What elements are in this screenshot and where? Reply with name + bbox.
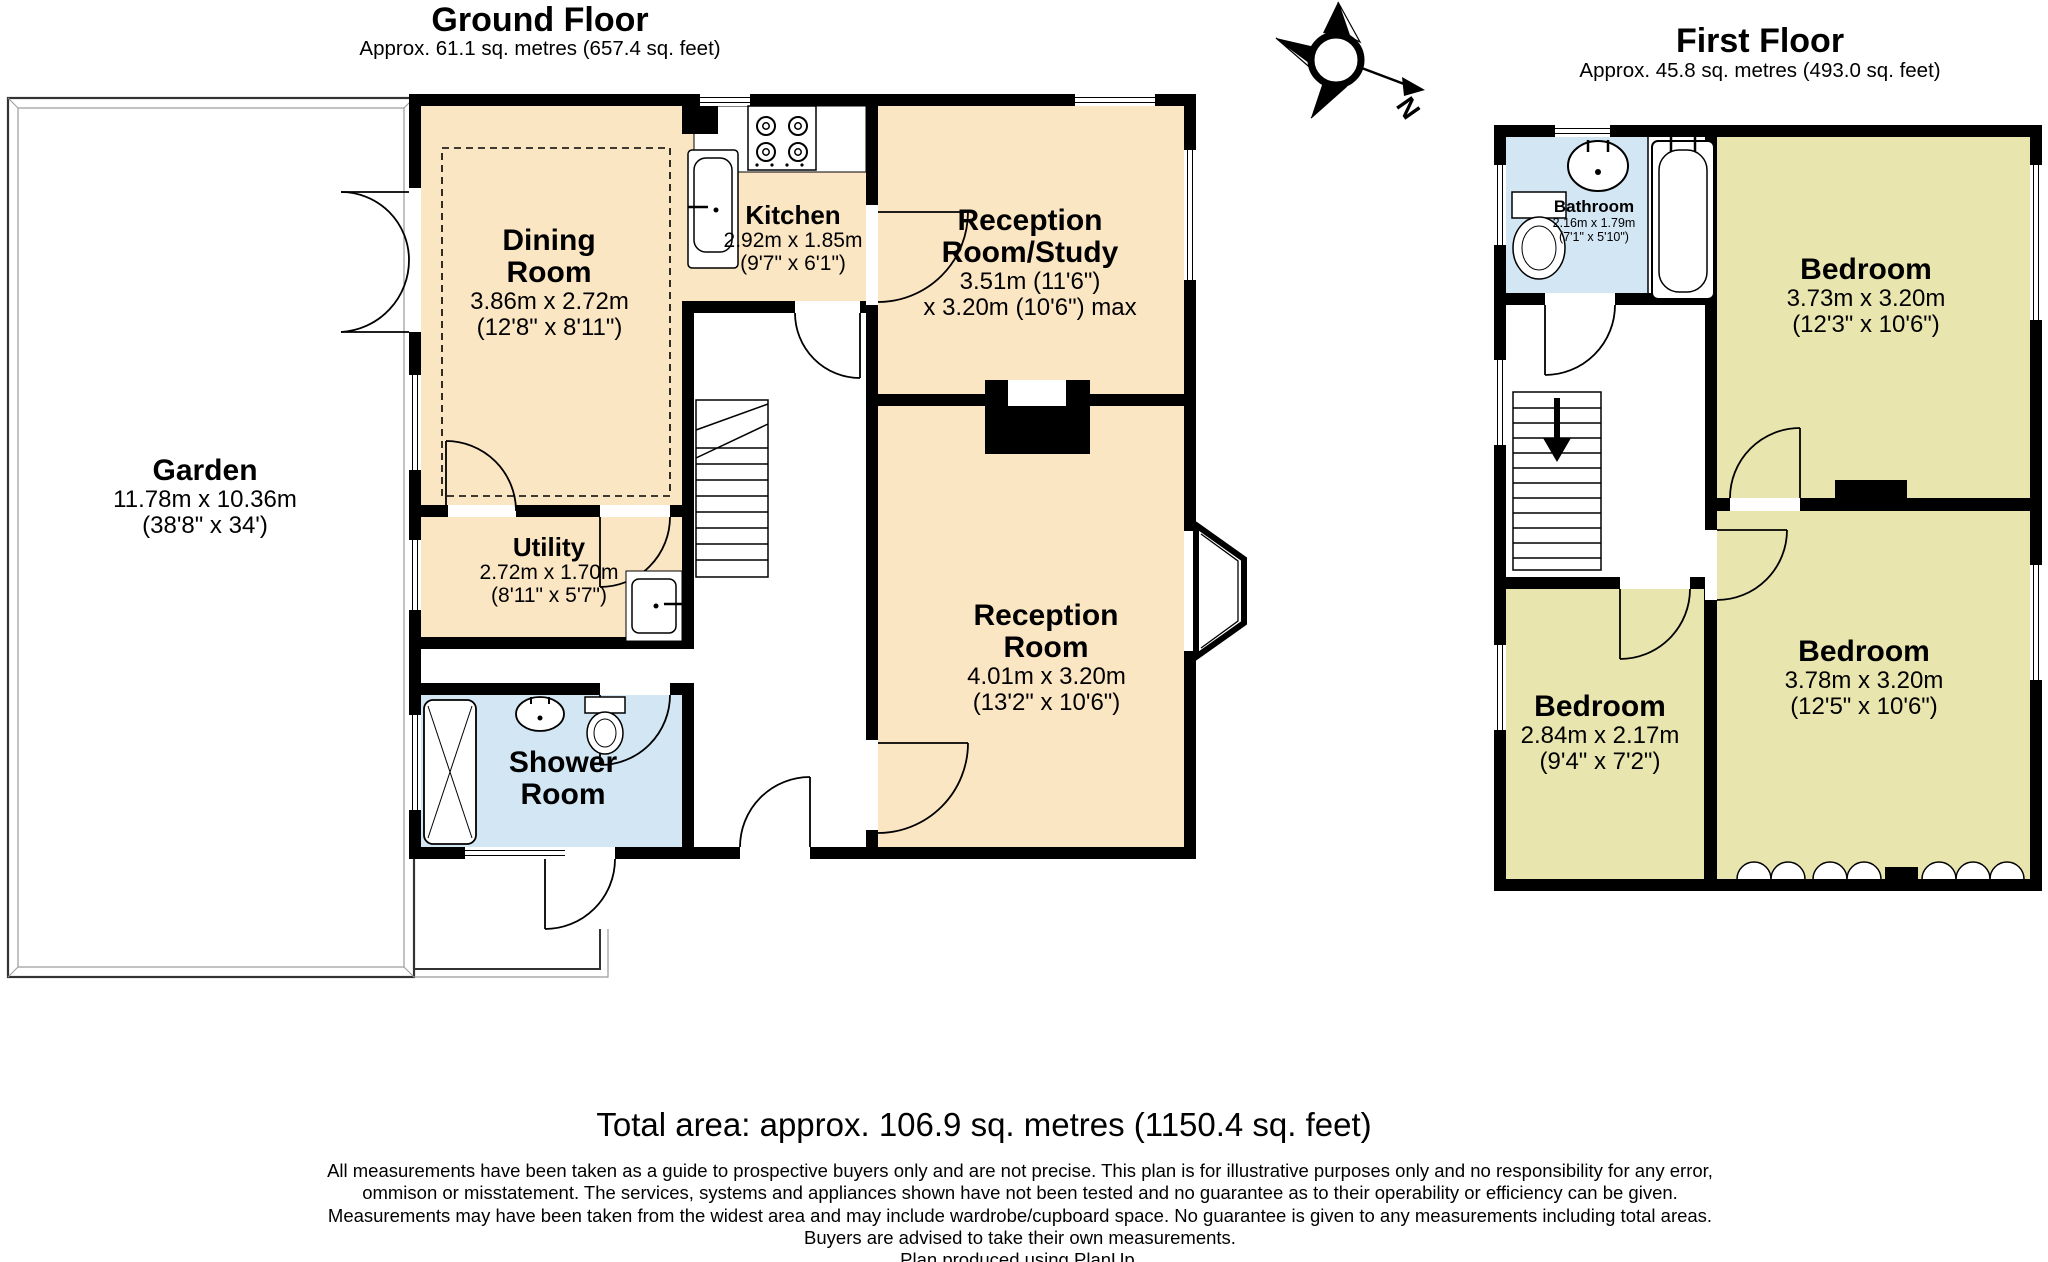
shower-tray-icon xyxy=(424,700,476,844)
room-dims-metric: 11.78m x 10.36m xyxy=(45,487,365,513)
room-name: Reception Room/Study xyxy=(913,205,1148,269)
room-dims-metric: 3.51m (11'6") xyxy=(913,269,1148,295)
room-dims-metric: 2.92m x 1.85m xyxy=(643,229,943,252)
room-dims-metric: 4.01m x 3.20m xyxy=(917,664,1177,690)
room-name: Bedroom xyxy=(1726,254,2006,286)
room-label-reception-room: Reception Room 4.01m x 3.20m (13'2" x 10… xyxy=(954,600,1139,716)
room-label-bathroom: Bathroom 2.16m x 1.79m (7'1" x 5'10") xyxy=(1509,198,1679,244)
room-dims-imperial: (9'7" x 6'1") xyxy=(643,252,943,275)
room-label-dining-room: Dining Room 3.86m x 2.72m (12'8" x 8'11"… xyxy=(462,225,637,341)
room-label-bedroom-sw: Bedroom 2.84m x 2.17m (9'4" x 7'2") xyxy=(1460,691,1740,775)
room-name: Shower Room xyxy=(491,747,636,811)
disclaimer-text: All measurements have been taken as a gu… xyxy=(0,1160,2040,1262)
ground-floor-subtitle: Approx. 61.1 sq. metres (657.4 sq. feet) xyxy=(359,37,720,61)
room-label-shower-room: Shower Room xyxy=(491,747,636,811)
disclaimer-line: Plan produced using PlanUp. xyxy=(0,1249,2040,1262)
room-dims-imperial: (9'4" x 7'2") xyxy=(1460,749,1740,775)
room-name: Kitchen xyxy=(643,201,943,229)
room-name: Bedroom xyxy=(1724,636,2004,668)
room-name: Utility xyxy=(404,533,694,561)
room-label-utility: Utility 2.72m x 1.70m (8'11" x 5'7") xyxy=(404,533,694,607)
room-dims-metric: 3.73m x 3.20m xyxy=(1726,286,2006,312)
first-floor-title: First Floor xyxy=(1676,22,1844,61)
room-dims-imperial: (12'8" x 8'11") xyxy=(420,315,680,341)
room-name: Bedroom xyxy=(1460,691,1740,723)
room-label-kitchen: Kitchen 2.92m x 1.85m (9'7" x 6'1") xyxy=(643,201,943,275)
room-dims-metric: 2.84m x 2.17m xyxy=(1460,723,1740,749)
first-floor-subtitle: Approx. 45.8 sq. metres (493.0 sq. feet) xyxy=(1579,59,1940,83)
room-name: Reception Room xyxy=(954,600,1139,664)
ground-stairs xyxy=(696,400,768,577)
floorplan-page: N xyxy=(0,0,2048,1262)
room-dims-imperial: (12'5" x 10'6") xyxy=(1724,694,2004,720)
room-dims-imperial: (13'2" x 10'6") xyxy=(917,690,1177,716)
room-name: Garden xyxy=(45,455,365,487)
room-label-bedroom-se: Bedroom 3.78m x 3.20m (12'5" x 10'6") xyxy=(1724,636,2004,720)
room-dims-imperial: (7'1" x 5'10") xyxy=(1509,230,1679,244)
room-dims-imperial: (38'8" x 34') xyxy=(45,513,365,539)
total-area-text: Total area: approx. 106.9 sq. metres (11… xyxy=(596,1106,1371,1144)
room-dims-imperial: x 3.20m (10'6") max xyxy=(913,295,1148,321)
compass-icon: N xyxy=(1276,2,1426,125)
room-dims-metric: 2.16m x 1.79m xyxy=(1509,216,1679,230)
room-label-reception-study: Reception Room/Study 3.51m (11'6") x 3.2… xyxy=(913,205,1148,321)
bay-window xyxy=(1184,525,1244,657)
ground-floor-title: Ground Floor xyxy=(431,1,648,40)
first-stairs xyxy=(1513,392,1601,570)
room-name: Dining Room xyxy=(462,225,637,289)
shower-basin-icon xyxy=(516,697,564,731)
disclaimer-line: Measurements may have been taken from th… xyxy=(0,1205,2040,1227)
room-label-garden: Garden 11.78m x 10.36m (38'8" x 34') xyxy=(45,455,365,539)
room-dims-imperial: (8'11" x 5'7") xyxy=(404,584,694,607)
disclaimer-line: All measurements have been taken as a gu… xyxy=(0,1160,2040,1182)
disclaimer-line: Buyers are advised to take their own mea… xyxy=(0,1227,2040,1249)
room-dims-metric: 3.78m x 3.20m xyxy=(1724,668,2004,694)
disclaimer-line: ommison or misstatement. The services, s… xyxy=(0,1182,2040,1204)
hob-icon xyxy=(748,106,816,170)
compass-north-label: N xyxy=(1390,92,1426,125)
room-label-bedroom-ne: Bedroom 3.73m x 3.20m (12'3" x 10'6") xyxy=(1726,254,2006,338)
room-name: Bathroom xyxy=(1509,198,1679,216)
room-dims-imperial: (12'3" x 10'6") xyxy=(1726,312,2006,338)
room-dims-metric: 2.72m x 1.70m xyxy=(404,561,694,584)
room-dims-metric: 3.86m x 2.72m xyxy=(420,289,680,315)
bathroom-basin-icon xyxy=(1568,140,1628,191)
